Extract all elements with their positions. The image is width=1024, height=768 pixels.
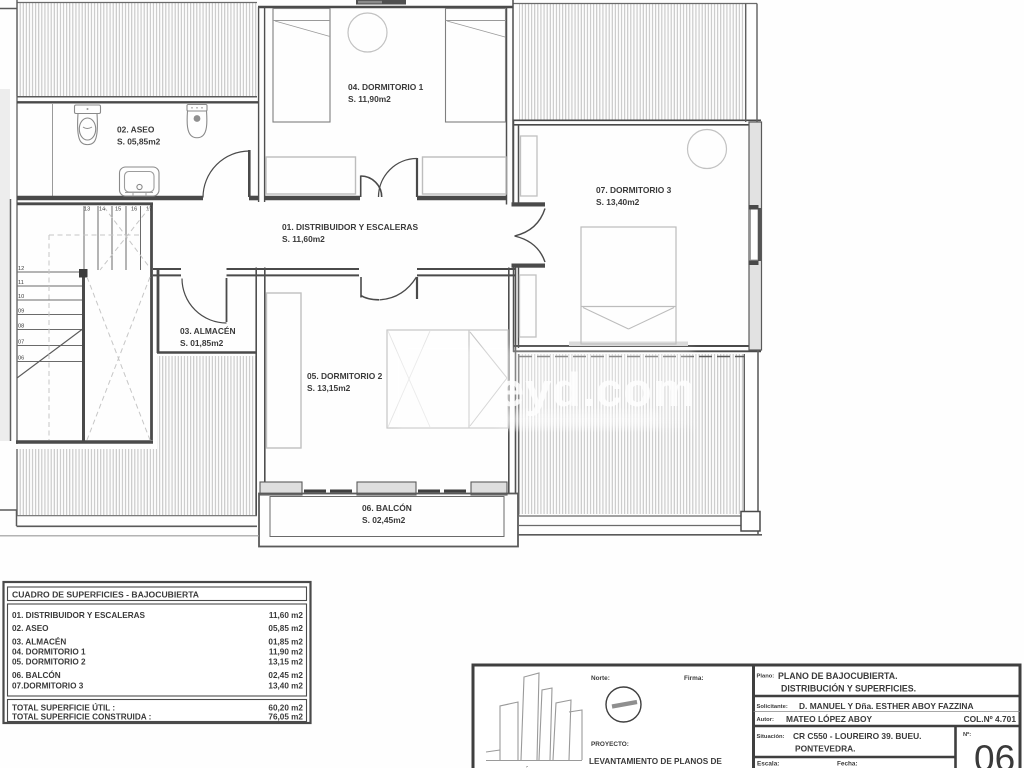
svg-text:05. DORMITORIO 2: 05. DORMITORIO 2 bbox=[307, 371, 383, 381]
svg-text:07.DORMITORIO 3: 07.DORMITORIO 3 bbox=[12, 682, 84, 691]
svg-text:PONTEVEDRA.: PONTEVEDRA. bbox=[795, 744, 856, 754]
svg-text:S. 13,15m2: S. 13,15m2 bbox=[307, 383, 351, 393]
svg-text:04. DORMITORIO 1: 04. DORMITORIO 1 bbox=[348, 82, 424, 92]
svg-text:Norte:: Norte: bbox=[591, 675, 610, 682]
svg-text:DISTRIBUCIÓN Y SUPERFICIES.: DISTRIBUCIÓN Y SUPERFICIES. bbox=[781, 683, 916, 694]
svg-text:07. DORMITORIO 3: 07. DORMITORIO 3 bbox=[596, 185, 672, 195]
svg-text:11: 11 bbox=[18, 280, 24, 286]
svg-text:11,90 m2: 11,90 m2 bbox=[269, 648, 304, 657]
svg-text:01,85 m2: 01,85 m2 bbox=[268, 638, 303, 647]
svg-text:01. DISTRIBUIDOR Y ESCALERAS: 01. DISTRIBUIDOR Y ESCALERAS bbox=[12, 611, 146, 620]
svg-text:CR C550 - LOUREIRO 39. BUEU.: CR C550 - LOUREIRO 39. BUEU. bbox=[793, 731, 921, 741]
svg-text:S. 13,40m2: S. 13,40m2 bbox=[596, 197, 640, 207]
svg-text:COL.Nº 4.701: COL.Nº 4.701 bbox=[964, 714, 1017, 724]
svg-text:03. ALMACÉN: 03. ALMACÉN bbox=[12, 637, 66, 647]
svg-text:06. BALCÓN: 06. BALCÓN bbox=[362, 502, 412, 513]
svg-text:Nº:: Nº: bbox=[963, 732, 971, 738]
svg-text:Fecha:: Fecha: bbox=[837, 761, 858, 768]
svg-text:10: 10 bbox=[18, 294, 24, 300]
svg-text:S. 05,85m2: S. 05,85m2 bbox=[117, 137, 161, 147]
svg-text:02,45 m2: 02,45 m2 bbox=[268, 671, 303, 680]
svg-text:TOTAL SUPERFICIE ÚTIL :: TOTAL SUPERFICIE ÚTIL : bbox=[12, 702, 115, 713]
svg-text:Escala:: Escala: bbox=[757, 761, 779, 768]
svg-text:Situación:: Situación: bbox=[757, 734, 785, 740]
svg-text:60,20 m2: 60,20 m2 bbox=[268, 704, 303, 713]
svg-text:04. DORMITORIO 1: 04. DORMITORIO 1 bbox=[12, 648, 86, 657]
svg-text:Autor:: Autor: bbox=[757, 717, 774, 723]
svg-text:01. DISTRIBUIDOR Y ESCALERAS: 01. DISTRIBUIDOR Y ESCALERAS bbox=[282, 222, 418, 232]
svg-text:05,85 m2: 05,85 m2 bbox=[268, 624, 303, 633]
svg-text:09: 09 bbox=[18, 309, 24, 315]
svg-text:11,60 m2: 11,60 m2 bbox=[269, 611, 304, 620]
svg-text:eyd.com: eyd.com bbox=[498, 363, 696, 416]
svg-text:Solicitante:: Solicitante: bbox=[757, 704, 788, 710]
svg-text:06: 06 bbox=[974, 738, 1015, 768]
svg-text:07: 07 bbox=[18, 340, 24, 346]
svg-text:S. 11,90m2: S. 11,90m2 bbox=[348, 94, 391, 104]
svg-text:15: 15 bbox=[115, 207, 121, 213]
svg-text:S. 01,85m2: S. 01,85m2 bbox=[180, 338, 224, 348]
svg-text:TOTAL SUPERFICIE CONSTRUIDA :: TOTAL SUPERFICIE CONSTRUIDA : bbox=[12, 713, 151, 722]
svg-text:LEVANTAMIENTO DE PLANOS DE: LEVANTAMIENTO DE PLANOS DE bbox=[589, 757, 722, 766]
svg-text:PLANO DE BAJOCUBIERTA.: PLANO DE BAJOCUBIERTA. bbox=[778, 671, 898, 681]
svg-text:Plano:: Plano: bbox=[757, 674, 775, 680]
svg-text:MATEO LÓPEZ ABOY: MATEO LÓPEZ ABOY bbox=[786, 713, 872, 724]
svg-text:Firma:: Firma: bbox=[684, 675, 704, 682]
svg-text:12: 12 bbox=[18, 266, 24, 272]
svg-text:16: 16 bbox=[131, 207, 137, 213]
svg-text:02. ASEO: 02. ASEO bbox=[117, 125, 155, 135]
svg-text:13: 13 bbox=[84, 207, 90, 213]
svg-text:06. BALCÓN: 06. BALCÓN bbox=[12, 669, 61, 680]
svg-text:D. MANUEL Y Dña. ESTHER ABOY F: D. MANUEL Y Dña. ESTHER ABOY FAZZINA bbox=[799, 701, 974, 711]
svg-text:08: 08 bbox=[18, 324, 24, 330]
svg-text:03. ALMACÉN: 03. ALMACÉN bbox=[180, 325, 236, 336]
svg-text:S. 02,45m2: S. 02,45m2 bbox=[362, 515, 406, 525]
svg-text:06: 06 bbox=[18, 356, 24, 362]
svg-text:CUADRO DE SUPERFICIES - BAJOCU: CUADRO DE SUPERFICIES - BAJOCUBIERTA bbox=[12, 590, 199, 600]
svg-text:13,15 m2: 13,15 m2 bbox=[268, 658, 303, 667]
svg-text:S. 11,60m2: S. 11,60m2 bbox=[282, 234, 325, 244]
svg-text:05. DORMITORIO 2: 05. DORMITORIO 2 bbox=[12, 658, 86, 667]
svg-text:76,05 m2: 76,05 m2 bbox=[268, 713, 303, 722]
svg-text:PROYECTO:: PROYECTO: bbox=[591, 741, 629, 748]
svg-text:02. ASEO: 02. ASEO bbox=[12, 624, 49, 633]
svg-text:13,40 m2: 13,40 m2 bbox=[268, 682, 303, 691]
